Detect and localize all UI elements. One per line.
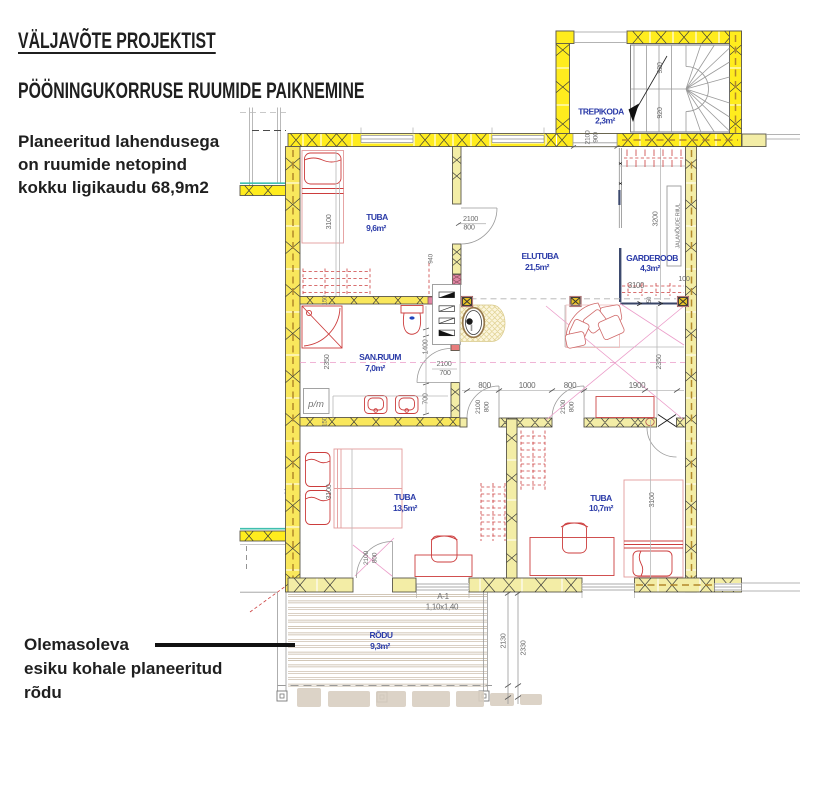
- svg-text:1,10x1,40: 1,10x1,40: [426, 603, 459, 612]
- svg-text:2100: 2100: [436, 359, 451, 368]
- svg-text:50: 50: [647, 296, 653, 303]
- svg-text:ELUTUBA: ELUTUBA: [521, 251, 558, 261]
- svg-text:2350: 2350: [654, 354, 663, 369]
- svg-text:4,3m²: 4,3m²: [640, 263, 660, 273]
- svg-text:21,5m²: 21,5m²: [525, 262, 550, 272]
- svg-text:100: 100: [678, 274, 690, 283]
- svg-text:3100: 3100: [324, 214, 333, 229]
- svg-text:TUBA: TUBA: [590, 493, 612, 503]
- svg-text:p/m: p/m: [307, 399, 324, 410]
- svg-text:A-1: A-1: [437, 592, 449, 601]
- svg-text:3100: 3100: [324, 484, 333, 499]
- svg-text:2100: 2100: [585, 130, 592, 144]
- svg-text:2100: 2100: [363, 551, 370, 565]
- svg-text:7,0m²: 7,0m²: [365, 363, 385, 373]
- svg-text:700: 700: [421, 393, 430, 405]
- svg-text:9,3m²: 9,3m²: [370, 641, 390, 651]
- svg-text:1400: 1400: [421, 339, 430, 354]
- svg-text:TUBA: TUBA: [394, 492, 416, 502]
- svg-text:900: 900: [593, 132, 600, 143]
- svg-text:2350: 2350: [322, 354, 331, 369]
- svg-text:2100: 2100: [475, 400, 482, 414]
- svg-text:940: 940: [428, 253, 435, 263]
- svg-text:RÕDU: RÕDU: [369, 630, 392, 640]
- svg-text:2,3m²: 2,3m²: [595, 116, 615, 126]
- svg-text:800: 800: [478, 381, 491, 390]
- svg-text:3200: 3200: [651, 211, 660, 226]
- svg-text:2330: 2330: [519, 640, 528, 655]
- svg-text:10,7m²: 10,7m²: [589, 503, 614, 513]
- svg-text:800: 800: [484, 401, 491, 412]
- svg-text:3100: 3100: [647, 492, 656, 507]
- svg-text:TUBA: TUBA: [366, 212, 388, 222]
- svg-text:920: 920: [655, 107, 664, 119]
- svg-text:9,6m²: 9,6m²: [366, 223, 386, 233]
- svg-text:800: 800: [569, 401, 576, 412]
- svg-text:1900: 1900: [629, 381, 646, 390]
- svg-text:920: 920: [655, 62, 664, 74]
- svg-text:SAN.RUUM: SAN.RUUM: [359, 352, 401, 362]
- svg-text:800: 800: [372, 552, 379, 563]
- svg-text:1000: 1000: [519, 381, 536, 390]
- svg-text:150: 150: [322, 295, 329, 306]
- svg-text:3100: 3100: [628, 281, 645, 290]
- svg-text:2100: 2100: [560, 400, 567, 414]
- svg-text:13,5m²: 13,5m²: [393, 503, 418, 513]
- svg-text:2130: 2130: [499, 633, 508, 648]
- svg-text:GARDEROOB: GARDEROOB: [626, 253, 678, 263]
- svg-text:800: 800: [564, 381, 577, 390]
- svg-text:150: 150: [322, 416, 329, 427]
- svg-text:JALANÕUDE RIIUL: JALANÕUDE RIIUL: [675, 203, 682, 248]
